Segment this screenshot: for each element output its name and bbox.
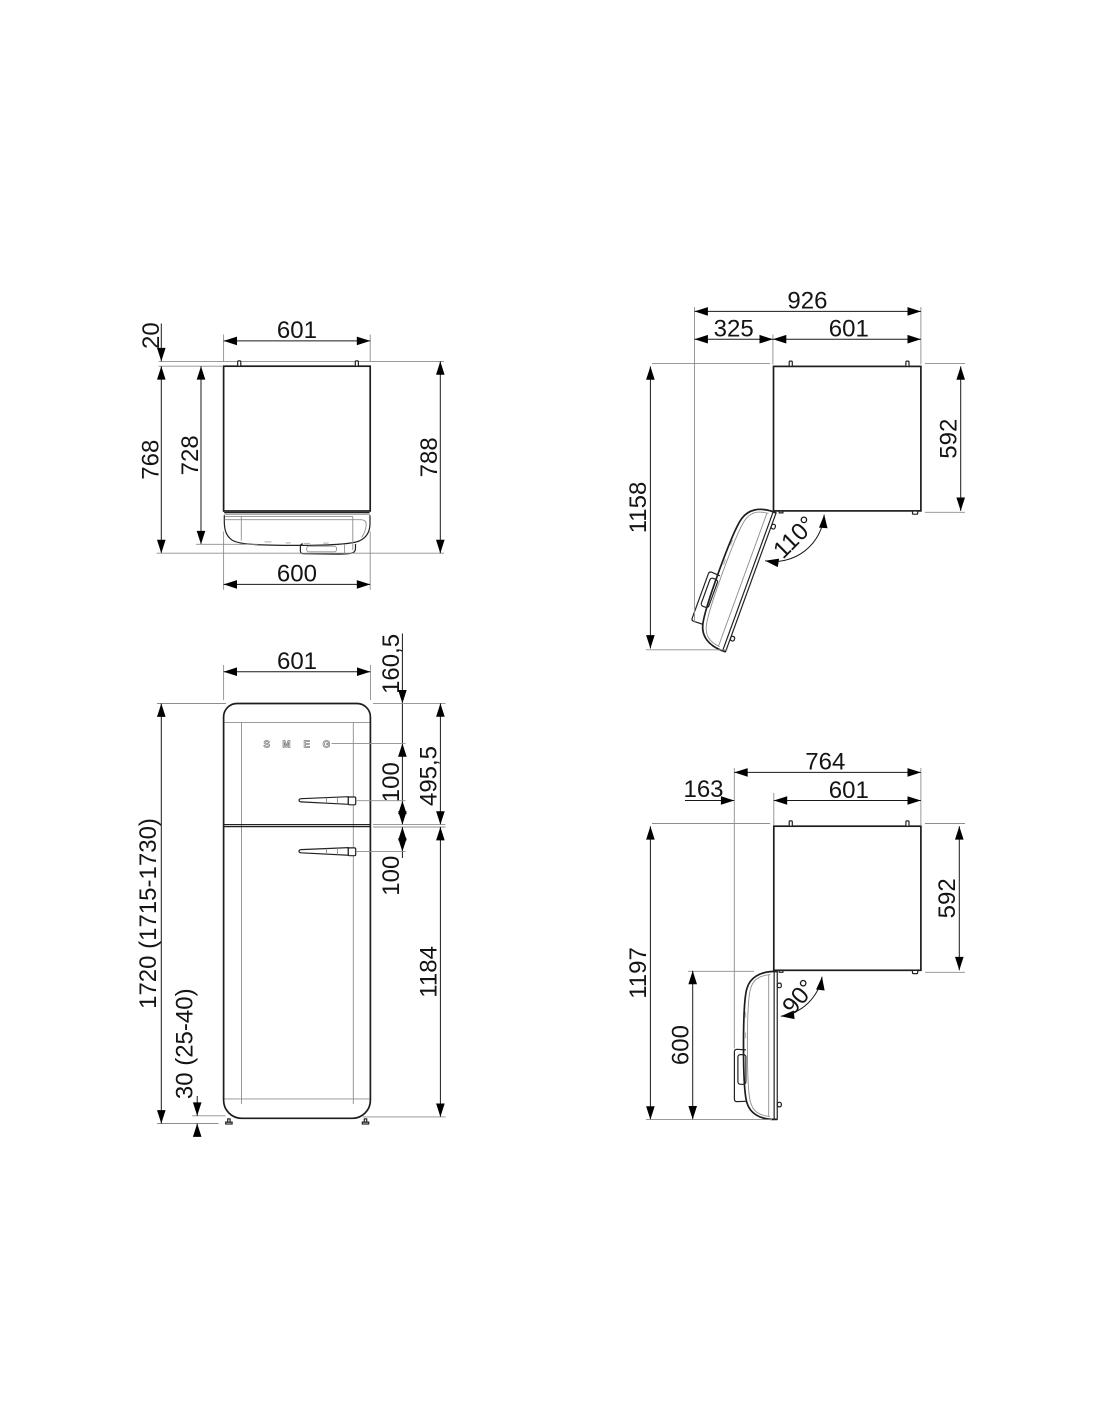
svg-text:163: 163 (683, 776, 723, 803)
svg-text:600: 600 (277, 560, 317, 587)
svg-text:728: 728 (177, 435, 204, 475)
svg-text:G: G (323, 739, 331, 750)
svg-text:592: 592 (936, 419, 963, 459)
svg-text:100: 100 (378, 762, 405, 802)
svg-text:S: S (264, 739, 271, 750)
svg-text:20: 20 (138, 322, 165, 349)
svg-text:601: 601 (277, 317, 317, 344)
svg-text:768: 768 (138, 440, 165, 480)
svg-text:601: 601 (277, 648, 317, 675)
svg-text:495,5: 495,5 (416, 746, 443, 806)
svg-text:764: 764 (805, 749, 845, 776)
svg-text:601: 601 (829, 777, 869, 804)
svg-text:1720 (1715-1730): 1720 (1715-1730) (135, 818, 162, 1009)
svg-text:325: 325 (714, 316, 754, 343)
svg-text:601: 601 (829, 316, 869, 343)
svg-text:E: E (304, 739, 311, 750)
svg-text:1184: 1184 (416, 946, 443, 998)
svg-text:592: 592 (934, 878, 961, 918)
svg-text:600: 600 (668, 1025, 695, 1065)
svg-text:M: M (282, 739, 290, 750)
svg-text:100: 100 (378, 856, 405, 896)
svg-text:160,5: 160,5 (378, 634, 405, 694)
svg-text:30 (25-40): 30 (25-40) (171, 988, 198, 1099)
svg-text:926: 926 (787, 288, 827, 315)
svg-text:788: 788 (416, 437, 443, 477)
svg-text:1158: 1158 (625, 482, 652, 534)
svg-text:1197: 1197 (625, 947, 652, 999)
